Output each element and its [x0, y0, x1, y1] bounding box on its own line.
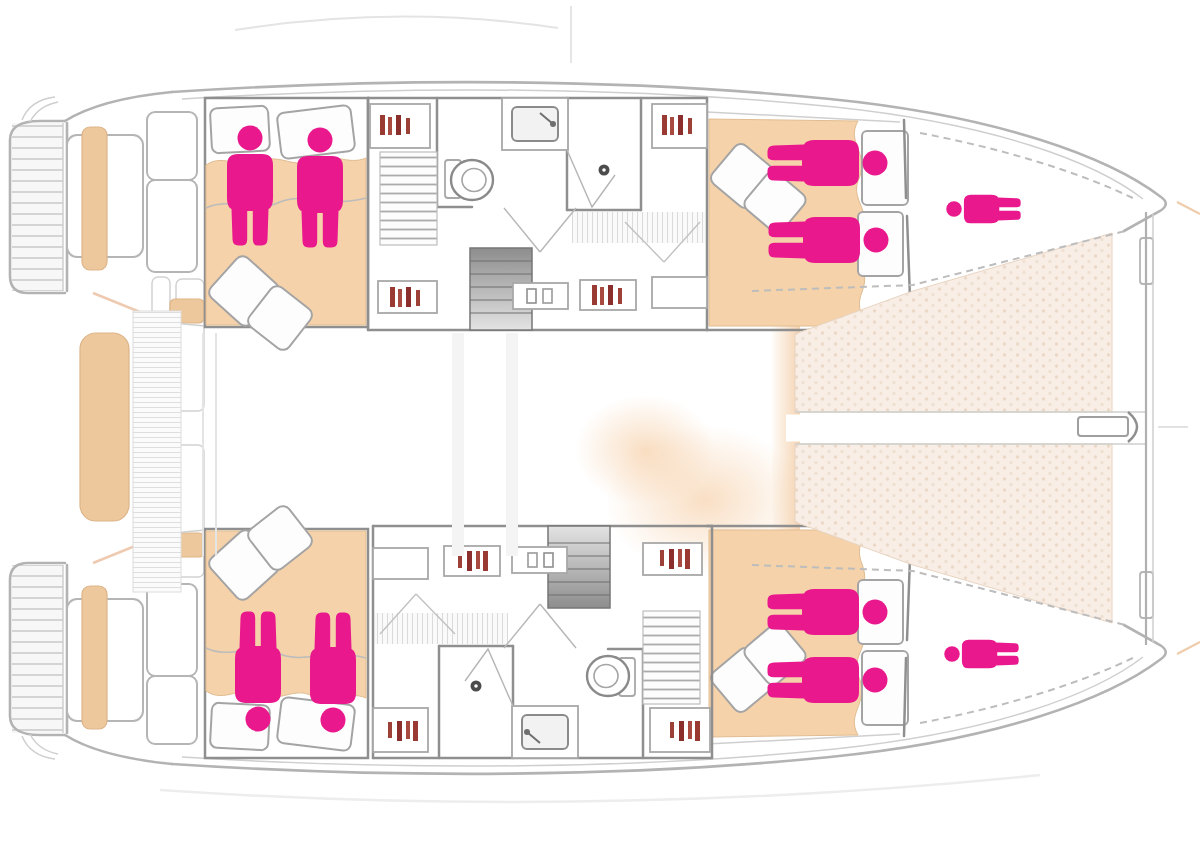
saloon-door-track [452, 333, 464, 556]
catamaran-floor-plan [0, 0, 1200, 857]
starboard-bathroom [373, 526, 712, 758]
person-lying-small-port-forepeak-single-berth-1 [946, 195, 1020, 224]
foredeck-sun-glow-2 [575, 395, 715, 505]
rigging-arc [235, 16, 558, 30]
hull-shadow-line [160, 775, 1040, 802]
cockpit-bench [80, 333, 129, 521]
person-lying-small-starboard-forepeak-single-berth-1 [944, 640, 1018, 669]
port-hull-structure [10, 82, 1200, 415]
saloon [203, 333, 518, 556]
saloon-door-track-2 [506, 333, 518, 556]
port-bathroom [368, 98, 707, 330]
cockpit-seat-slats [133, 311, 181, 592]
bowsprit [1078, 417, 1128, 436]
floor-plan-drawing [0, 0, 1200, 857]
